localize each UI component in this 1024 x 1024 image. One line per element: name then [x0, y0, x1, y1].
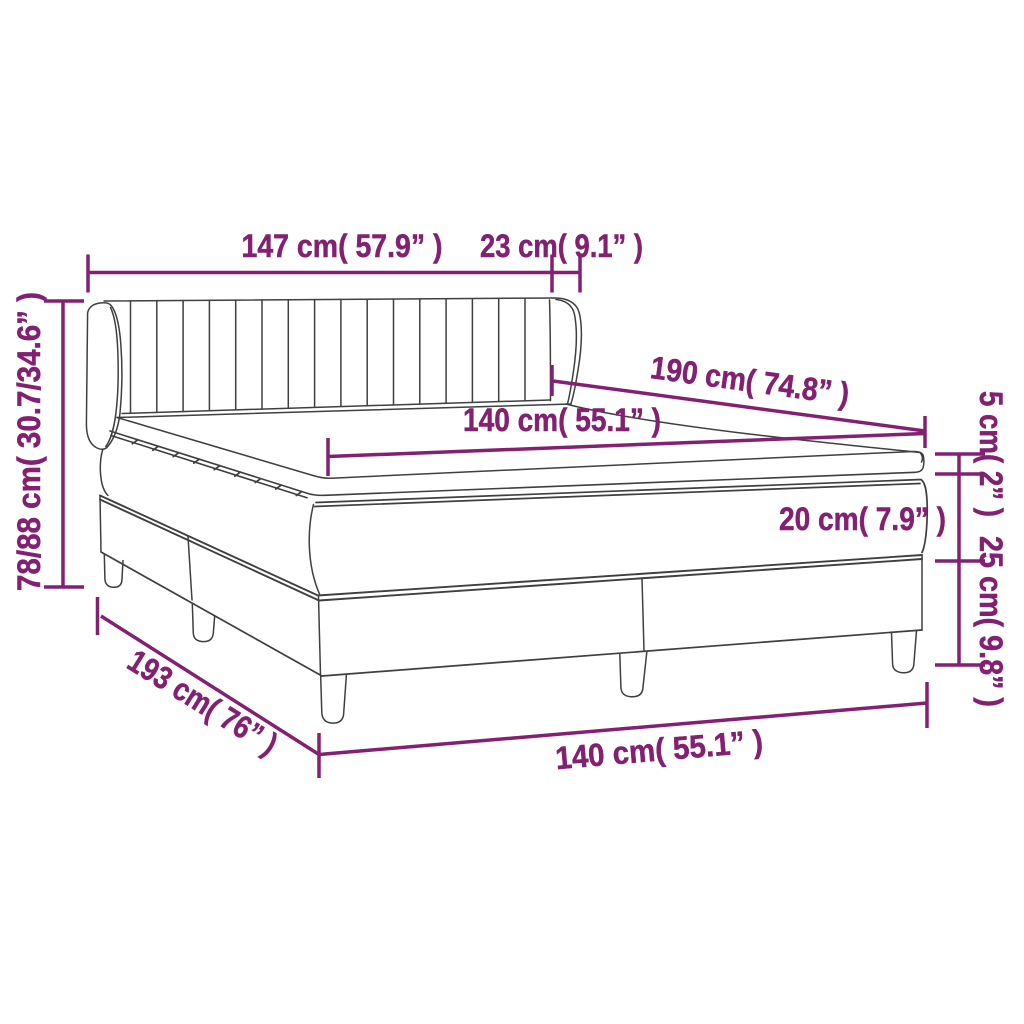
- svg-text:20 cm( 7.9” ): 20 cm( 7.9” ): [779, 501, 946, 537]
- svg-text:25 cm( 9.8” ): 25 cm( 9.8” ): [973, 536, 1009, 707]
- svg-text:5 cm( 2” ): 5 cm( 2” ): [973, 391, 1009, 517]
- svg-text:23 cm( 9.1” ): 23 cm( 9.1” ): [480, 228, 643, 264]
- svg-text:147 cm( 57.9” ): 147 cm( 57.9” ): [242, 228, 443, 264]
- svg-text:140 cm( 55.1” ): 140 cm( 55.1” ): [463, 402, 661, 438]
- svg-text:78/88 cm( 30.7/34.6” ): 78/88 cm( 30.7/34.6” ): [11, 292, 47, 591]
